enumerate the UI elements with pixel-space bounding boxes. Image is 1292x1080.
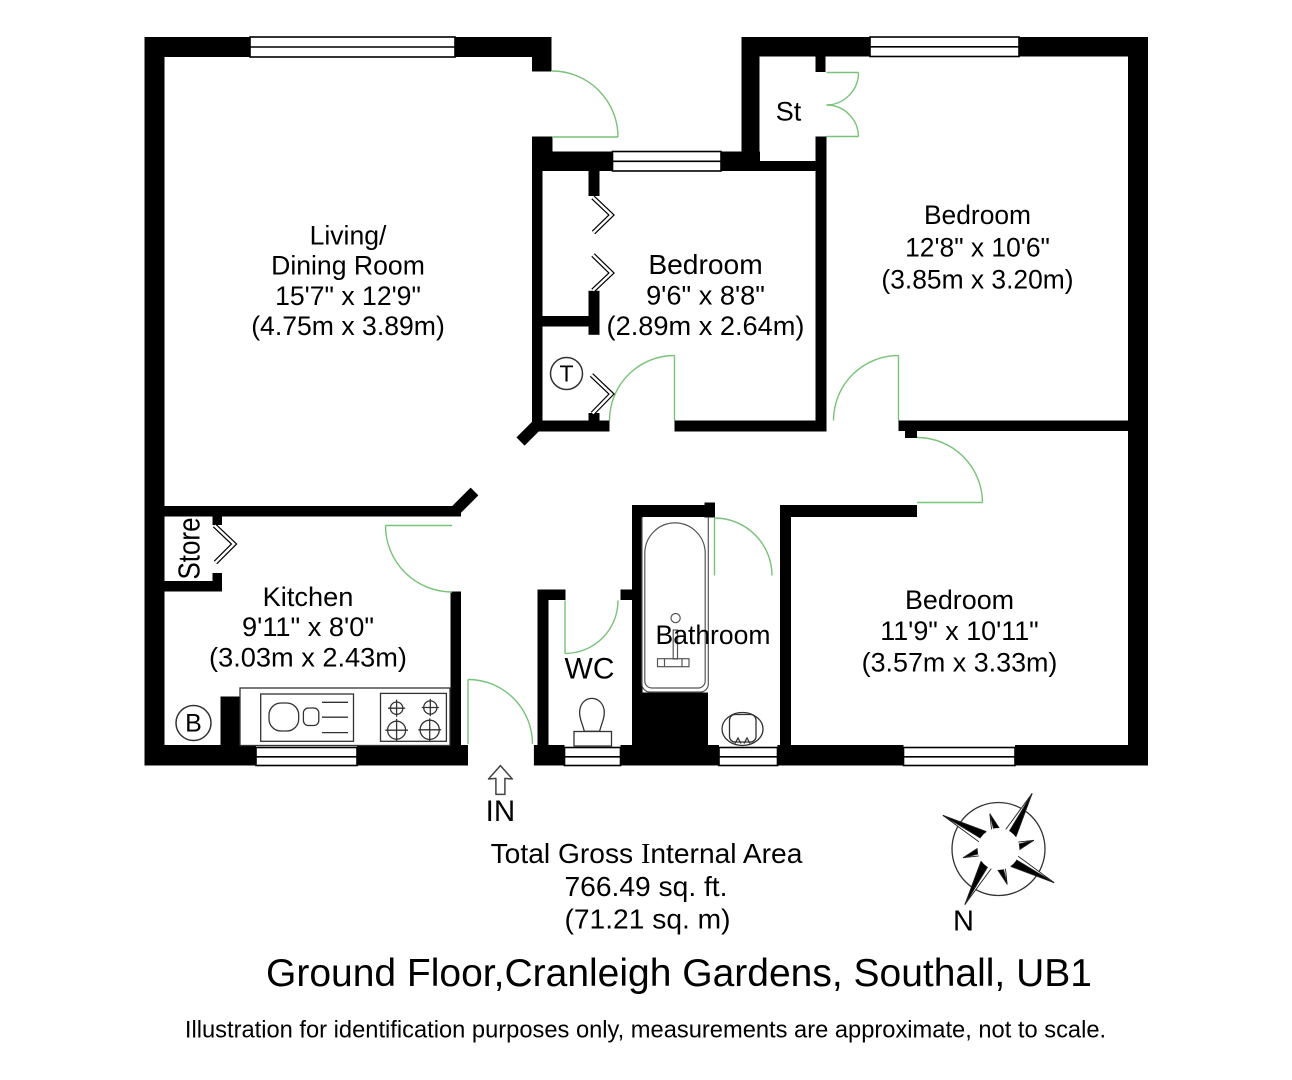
- svg-text:(3.57m x 3.33m): (3.57m x 3.33m): [862, 648, 1058, 678]
- svg-text:(4.75m x 3.89m): (4.75m x 3.89m): [251, 311, 445, 341]
- svg-text:12'8" x 10'6": 12'8" x 10'6": [905, 232, 1050, 262]
- svg-text:9'11" x 8'0": 9'11" x 8'0": [242, 611, 374, 642]
- svg-text:Bathroom: Bathroom: [656, 620, 771, 650]
- svg-text:Bedroom: Bedroom: [905, 585, 1014, 615]
- svg-text:N: N: [953, 905, 974, 937]
- svg-text:(2.89m x 2.64m): (2.89m x 2.64m): [607, 310, 805, 341]
- svg-text:15'7" x 12'9": 15'7" x 12'9": [275, 281, 421, 311]
- svg-text:9'6" x 8'8": 9'6" x 8'8": [646, 280, 765, 311]
- svg-text:Kitchen: Kitchen: [263, 581, 354, 612]
- svg-text:T: T: [559, 361, 573, 387]
- svg-text:(3.03m x 2.43m): (3.03m x 2.43m): [209, 642, 407, 673]
- svg-text:Illustration for identificatio: Illustration for identification purposes…: [185, 1018, 1106, 1044]
- svg-text:Total Gross Internal Area: Total Gross Internal Area: [491, 837, 803, 870]
- svg-text:WC: WC: [565, 653, 615, 686]
- svg-text:11'9" x 10'11": 11'9" x 10'11": [880, 616, 1038, 646]
- svg-text:Ground Floor,Cranleigh Gardens: Ground Floor,Cranleigh Gardens, Southall…: [266, 952, 1092, 995]
- svg-text:B: B: [185, 710, 202, 738]
- svg-text:(3.85m x 3.20m): (3.85m x 3.20m): [881, 265, 1073, 295]
- svg-text:Bedroom: Bedroom: [648, 248, 762, 280]
- svg-text:St: St: [776, 97, 802, 127]
- svg-text:Dining Room: Dining Room: [271, 251, 425, 281]
- svg-text:Store: Store: [172, 518, 207, 580]
- svg-text:Living/: Living/: [310, 221, 387, 251]
- svg-text:(71.21 sq. m): (71.21 sq. m): [564, 903, 730, 935]
- svg-text:IN: IN: [486, 795, 516, 828]
- svg-text:766.49 sq. ft.: 766.49 sq. ft.: [565, 870, 728, 902]
- svg-text:Bedroom: Bedroom: [924, 200, 1031, 230]
